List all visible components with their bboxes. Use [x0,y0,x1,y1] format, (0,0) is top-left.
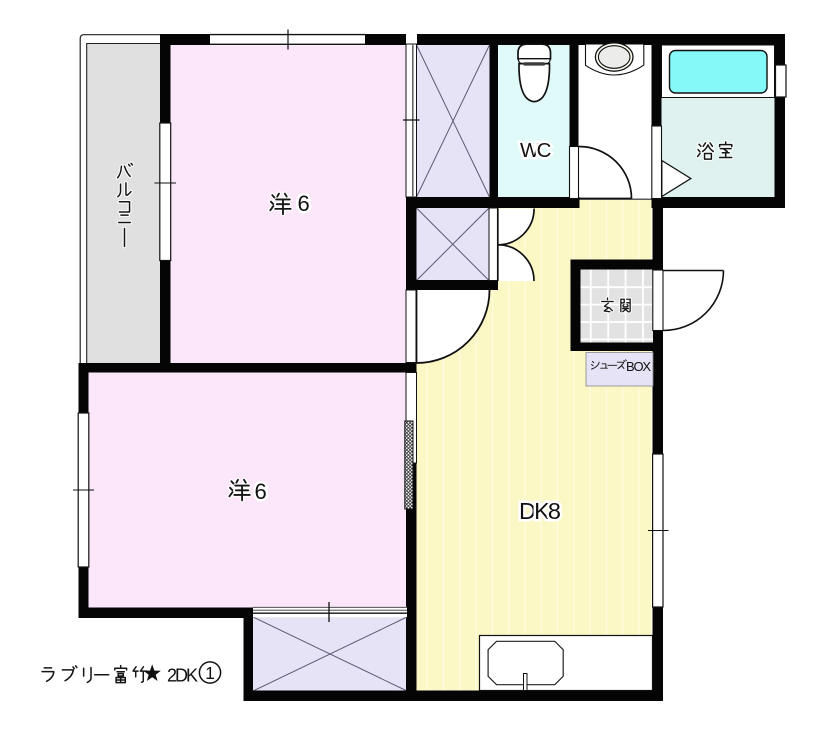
svg-text:6: 6 [255,479,267,504]
svg-text:BOX: BOX [626,359,651,374]
svg-text:WC: WC [520,139,552,162]
svg-text:DK8: DK8 [519,498,561,524]
svg-text:1: 1 [205,663,215,683]
svg-text:2DK: 2DK [167,665,198,685]
svg-text:6: 6 [298,191,310,216]
